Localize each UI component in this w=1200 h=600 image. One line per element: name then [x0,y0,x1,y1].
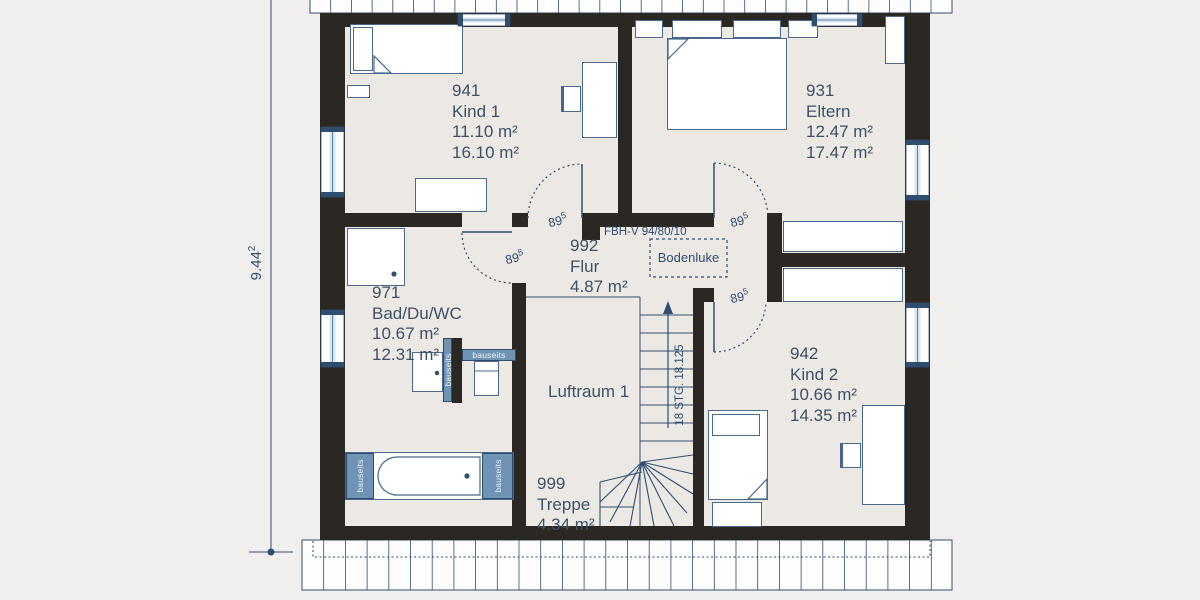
window-left-2 [321,310,344,367]
room-area-floor: 12.31 m² [372,345,462,366]
room-number: 992 [570,236,628,257]
underfloor-heating-label: FBH-V 94/80/10 [604,226,686,238]
room-name: Treppe [537,495,595,516]
room-number: 941 [452,81,519,102]
door-kind1 [528,164,582,218]
room-area-living: 4.87 m² [570,277,628,298]
room-area-floor: 14.35 m² [790,406,857,427]
window-left-1 [321,127,344,197]
door-eltern [714,163,768,218]
room-name: Flur [570,257,628,278]
room-name: Kind 1 [452,102,519,123]
room-label-treppe: 999 Treppe 4.34 m² [537,474,595,536]
room-name: Kind 2 [790,365,857,386]
blanket-fold-eltern [668,39,688,59]
room-number: 942 [790,344,857,365]
floorplan-canvas: bauseits bauseits bauseits bauseits [0,0,1200,600]
window-right-2 [906,303,929,367]
room-area-living: 10.66 m² [790,385,857,406]
blanket-fold-kind2 [748,479,767,499]
room-label-eltern: 931 Eltern 12.47 m² 17.47 m² [806,81,873,163]
room-label-bad: 971 Bad/Du/WC 10.67 m² 12.31 m² [372,283,462,365]
room-number: 999 [537,474,595,495]
blanket-fold-kind1 [374,56,391,73]
shower-drain-dot [391,271,396,276]
room-label-kind2: 942 Kind 2 10.66 m² 14.35 m² [790,344,857,426]
luftraum-label: Luftraum 1 [548,382,629,403]
room-area-living: 10.67 m² [372,324,462,345]
stair-count-label: 18 STG. 18.125 [674,319,686,451]
bodenluke-label: Bodenluke [650,250,727,265]
room-name: Bad/Du/WC [372,304,462,325]
room-label-kind1: 941 Kind 1 11.10 m² 16.10 m² [452,81,519,163]
window-top-kind1 [458,14,510,26]
stair-direction-arrow [663,301,673,428]
window-top-eltern [812,14,862,26]
room-number: 971 [372,283,462,304]
room-area-floor: 17.47 m² [806,143,873,164]
room-label-flur: 992 Flur 4.87 m² [570,236,628,298]
room-area-floor: 16.10 m² [452,143,519,164]
washbasin-tap-dot [435,371,439,375]
room-area-living: 12.47 m² [806,122,873,143]
bathtub-tap-dot [464,473,469,478]
window-right-1 [906,140,929,200]
door-kind2 [714,302,766,352]
room-number: 931 [806,81,873,102]
room-area-living: 4.34 m² [537,515,595,536]
room-name: Eltern [806,102,873,123]
detail-drawing-layer [0,0,1200,600]
room-area-living: 11.10 m² [452,122,519,143]
building-depth-dimension: 9.442 [247,233,265,293]
